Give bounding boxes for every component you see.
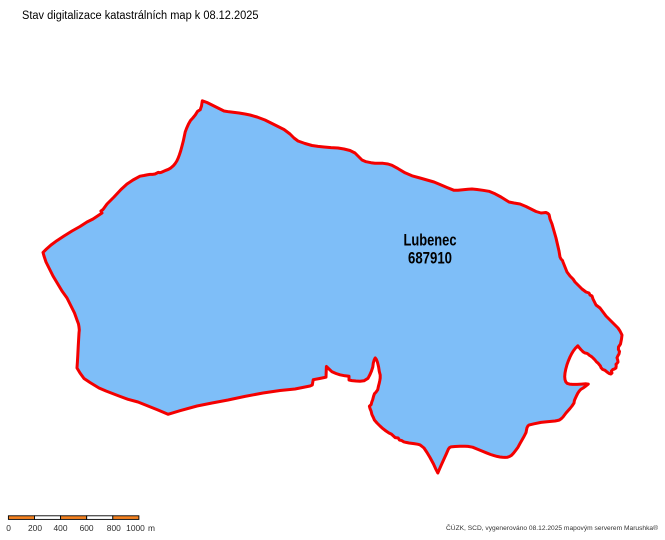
- svg-text:600: 600: [80, 523, 94, 533]
- svg-text:400: 400: [54, 523, 68, 533]
- svg-text:m: m: [148, 523, 155, 533]
- svg-text:ČÚZK, SCD, vygenerováno 08.12.: ČÚZK, SCD, vygenerováno 08.12.2025 mapov…: [446, 523, 658, 532]
- svg-text:687910: 687910: [408, 249, 452, 268]
- svg-text:200: 200: [28, 523, 42, 533]
- svg-text:800: 800: [107, 523, 121, 533]
- svg-text:0: 0: [6, 523, 11, 533]
- svg-text:1000: 1000: [126, 523, 145, 533]
- svg-text:Stav digitalizace katastrálníc: Stav digitalizace katastrálních map k 08…: [22, 10, 259, 22]
- svg-text:Lubenec: Lubenec: [404, 230, 457, 249]
